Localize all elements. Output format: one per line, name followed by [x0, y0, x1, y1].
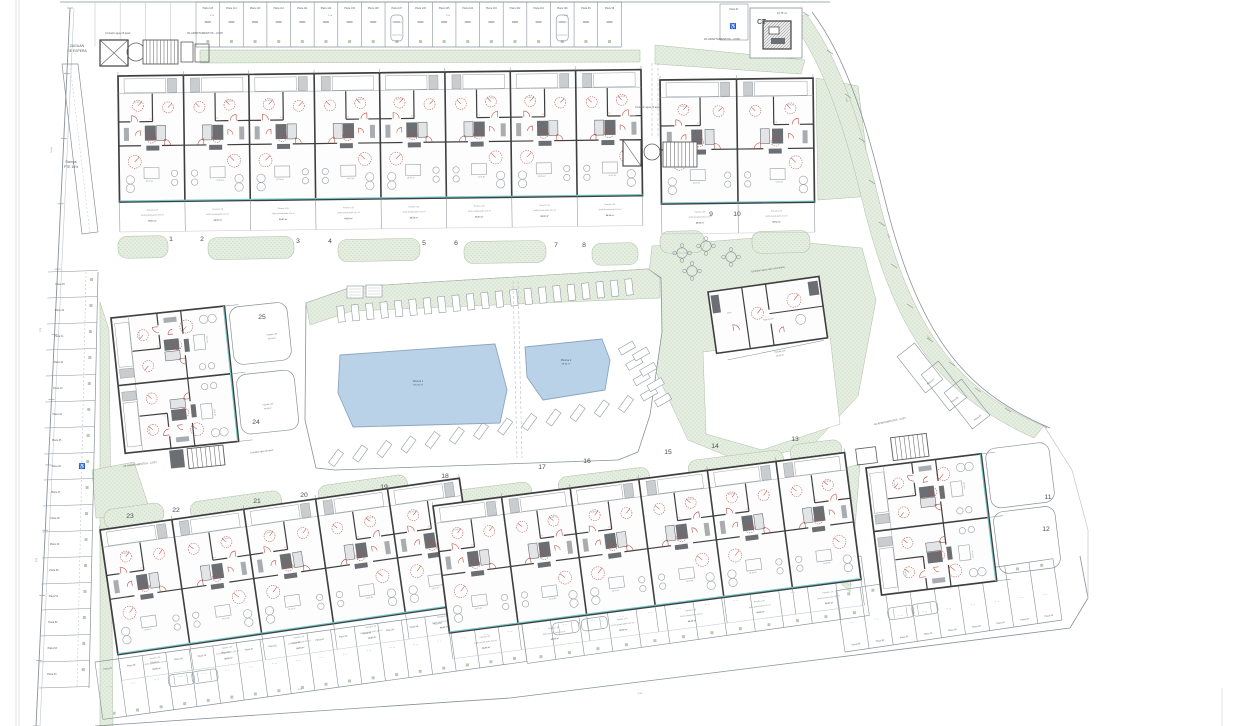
parking-stall-label: Plaza 45	[52, 439, 62, 442]
stall-edge	[103, 661, 527, 719]
car-body	[581, 616, 608, 631]
stall-divider	[1005, 566, 1014, 627]
stall-green-dot	[230, 40, 233, 43]
garden-area-text: 98.50 m²	[368, 636, 377, 640]
bath-core	[275, 124, 286, 139]
balcony-sill	[321, 76, 330, 90]
stall-green-dot	[824, 615, 827, 618]
sun-lounger	[380, 302, 389, 319]
garden-area-text: 98.50 m²	[279, 218, 288, 221]
stall-divider	[42, 557, 92, 559]
bath-fixture	[157, 125, 166, 140]
bath-core	[675, 524, 688, 540]
balcony-sill	[623, 483, 634, 498]
garden-text: Parcela 1.29	[822, 590, 833, 594]
stall-green-dot	[87, 434, 90, 437]
bath-fixture	[293, 551, 304, 567]
block-number: 7	[554, 242, 558, 249]
garden-text: Jardín privado jardín 10.5 m²	[817, 594, 841, 600]
dimension-text: 7.05	[40, 327, 42, 332]
garden-area-text: 98.50 m²	[606, 214, 615, 217]
stall-green-dot	[82, 668, 85, 671]
block-number: 15	[664, 449, 672, 456]
car-rear-window	[197, 672, 198, 682]
garden-mound-green	[118, 236, 168, 259]
garden-text: Jardín privado jardín 10.5 m²	[543, 630, 567, 636]
room-area-text: 10.35 m²	[487, 96, 495, 99]
parking-stall-label: Plaza 68	[410, 626, 419, 629]
stall-green-dot	[442, 667, 445, 670]
bath-core	[538, 541, 551, 557]
block-number: 9	[709, 211, 713, 218]
dimension-text: 2.77	[814, 499, 818, 501]
room-area-text: 18.70 m²	[146, 180, 154, 183]
bath-core	[423, 532, 436, 548]
block-number: 21	[253, 498, 261, 505]
block-number: 5	[422, 240, 426, 247]
parking-stall-label: Plaza 103	[486, 7, 497, 10]
stall-green-dot	[277, 689, 280, 692]
parking-stall-label: Plaza 105	[439, 7, 450, 10]
garden-area-text: 98.50 m²	[541, 215, 550, 218]
parking-stall-label: Plaza 40	[55, 309, 65, 312]
terrace-divider	[989, 516, 1003, 518]
bath-fixture	[802, 507, 813, 523]
pool-piscina-2	[525, 339, 610, 400]
bath-core	[813, 506, 826, 522]
stall-divider	[860, 587, 869, 648]
terrace-divider	[224, 305, 238, 306]
site-plan: Plaza 115Plaza 114Plaza 113Plaza 112Plaz…	[0, 0, 1240, 726]
stall-green-dot	[466, 40, 469, 43]
balcony-sill	[583, 73, 592, 87]
room-area-text: 10.35 m²	[618, 95, 626, 98]
garden-area-text: 98.50 m²	[296, 646, 305, 650]
garden-text: Jardín privado jardín 10.5 m²	[598, 208, 621, 211]
garden-text: Parcela 1.29	[147, 209, 158, 212]
garden-area-text: 98.50 m²	[825, 601, 834, 605]
stall-divider	[40, 635, 90, 637]
car-body	[191, 669, 218, 684]
block-number: 20	[300, 492, 308, 499]
sun-lounger	[495, 291, 504, 308]
wardrobe	[385, 125, 390, 138]
stall-green-dot	[739, 627, 742, 630]
room-area-text: 10.35 m²	[526, 96, 534, 99]
spiral-stair-circle	[127, 43, 145, 61]
block-number: 10	[733, 211, 741, 218]
wardrobe	[340, 143, 353, 148]
bath-core	[741, 515, 754, 531]
stall-green-dot	[160, 705, 163, 708]
garden-divider	[449, 633, 452, 659]
utility-room	[181, 42, 193, 62]
garden-text: Parcela 1.29	[474, 205, 485, 208]
dimension-text: 2.77	[774, 122, 777, 124]
dimension-text: 2.77	[677, 517, 681, 519]
plan-label: DE ESPERA	[67, 49, 87, 53]
balcony-sill	[878, 536, 893, 547]
stall-green-dot	[82, 642, 85, 645]
garden-divider	[334, 624, 338, 650]
dimension-text: 2.77	[697, 123, 700, 125]
parking-stall-label: Plaza 51	[49, 595, 59, 598]
balcony-sill	[429, 75, 438, 89]
accessible-parking-icon: ♿	[730, 23, 737, 30]
stall-green-dot	[1040, 564, 1043, 567]
room-area-text: 10.35 m²	[225, 100, 233, 103]
parking-stall-label: Plaza 108	[368, 7, 379, 10]
dimension-text: 2.77	[746, 508, 750, 510]
bath-fixture	[200, 565, 211, 581]
balcony	[124, 78, 166, 93]
garden-area-text: 98.50 m²	[440, 625, 449, 629]
plan-label: 26-APARTAMENTOS - COPI	[123, 460, 157, 468]
car-windshield	[930, 603, 931, 613]
wardrobe	[124, 128, 129, 141]
parking-stall-label: Plaza 112	[273, 7, 284, 10]
elevator-icon	[169, 449, 185, 468]
block-number: 23	[126, 513, 134, 520]
stall-green-dot	[419, 40, 422, 43]
stall-green-dot	[443, 40, 446, 43]
stairs-icon	[663, 142, 697, 167]
room-area-text: 18.70 m²	[608, 174, 616, 177]
bath-fixture	[549, 121, 558, 136]
parking-stall-label: Plaza 109	[344, 7, 355, 10]
car-icon	[581, 616, 608, 631]
block-number: 8	[582, 242, 586, 249]
bath-fixture	[165, 350, 181, 361]
block-number: 1	[169, 236, 173, 243]
parking-stall-label: Plaza 59	[198, 655, 207, 658]
garden-text: Parcela 1.29	[408, 205, 419, 208]
garden-area-text: 98.50 m²	[410, 216, 419, 219]
garden-text: Jardín privado jardín 10.5 m²	[216, 649, 240, 655]
building-blocks-1-8: 10.35 m²18.70 m²2.7710.35 m²18.70 m²2.77…	[118, 66, 643, 232]
stall-green-dot	[136, 709, 139, 712]
bath-fixture	[479, 549, 490, 565]
balcony-sill	[486, 501, 497, 516]
bath-core	[136, 574, 149, 590]
garden-area-text: 98.50 m²	[756, 610, 765, 614]
garden-mound-green	[464, 240, 546, 263]
stall-green-dot	[625, 643, 628, 646]
balcony-sill	[744, 82, 753, 96]
garden-area-text: 98.50 m²	[688, 619, 697, 623]
sun-lounger	[596, 281, 605, 298]
stall-green-dot	[395, 673, 398, 676]
stall-divider	[39, 687, 89, 689]
balcony	[594, 73, 636, 88]
sun-lounger	[466, 294, 475, 311]
garden-text: Parcela 1.29	[548, 626, 559, 630]
stall-green-dot	[513, 657, 516, 660]
stall-green-dot	[84, 564, 87, 567]
stall-green-dot	[85, 538, 88, 541]
garden-area-text: 98.50 m²	[224, 656, 233, 660]
sun-lounger	[481, 292, 490, 309]
bath-fixture	[287, 124, 296, 139]
stall-green-dot	[537, 40, 540, 43]
wardrobe	[471, 142, 484, 147]
wardrobe	[408, 142, 421, 147]
plan-label: 22.75 m²	[777, 11, 787, 15]
block-number: 2	[200, 236, 204, 243]
bath-fixture	[528, 543, 539, 559]
stall-green-dot	[490, 40, 493, 43]
garden-area-text: 98.50 m²	[619, 628, 628, 632]
parking-stall-label: Plaza 85	[974, 414, 983, 421]
parking-stall-label: Plaza 47	[51, 491, 61, 494]
stall-divider	[40, 661, 90, 663]
stairs-icon	[891, 433, 930, 460]
car-body	[887, 605, 914, 621]
stall-green-dot	[206, 40, 209, 43]
plan-label: ZAGUAN	[70, 44, 85, 48]
balcony-sill	[167, 78, 176, 92]
garden-text: Parcela 1.29	[617, 617, 628, 621]
dimension-text: 2.77	[912, 493, 914, 497]
room-area-text: 10.35 m²	[396, 98, 404, 101]
garden-text: Parcela 1.29	[150, 656, 161, 660]
bath-fixture	[760, 129, 769, 144]
bath-fixture	[149, 572, 160, 588]
parking-stall-label: Plaza 53	[48, 647, 58, 650]
parking-stall-label: Plaza 107	[392, 7, 403, 10]
wardrobe	[239, 126, 244, 139]
balcony-sill	[444, 482, 455, 497]
balcony-sill	[156, 524, 167, 539]
garden-area-text: 98.50 m²	[772, 221, 781, 224]
bath-core	[145, 126, 156, 141]
garden-text: Jardín privado jardín 10.5 m²	[144, 660, 168, 666]
bath-fixture	[464, 122, 473, 137]
balcony-sill	[179, 520, 190, 535]
stall-green-dot	[796, 619, 799, 622]
pool-area-label: 436.30 m²	[413, 384, 423, 387]
plan-label: Parcela 1.29	[263, 402, 274, 406]
stall-divider	[1053, 559, 1062, 620]
bath-fixture	[418, 122, 427, 137]
plan-label: Contador agua 25 apart.	[105, 32, 131, 35]
block-number: 24	[252, 419, 260, 426]
garden-mound-green	[208, 236, 294, 259]
balcony	[201, 77, 243, 92]
building-blocks-11-12: 10.35 m²18.70 m²2.7710.35 m²18.70 m²2.77	[866, 452, 1011, 595]
stall-green-dot	[489, 660, 492, 663]
balcony-sill	[875, 514, 890, 525]
stall-green-dot	[539, 655, 542, 658]
dimension-text: 2.77	[150, 119, 153, 121]
garden-text: Jardín privado jardín 10.5 m²	[468, 209, 491, 212]
parking-stall-label: Plaza 94	[996, 622, 1005, 625]
stall-edge	[527, 615, 869, 663]
parking-stall-label: Plaza 113	[250, 7, 261, 10]
stall-green-dot	[88, 382, 91, 385]
plan-label: 40-APARTAMENTOS - COPI	[874, 417, 906, 427]
stall-green-dot	[89, 330, 92, 333]
stall-green-dot	[183, 702, 186, 705]
dimension-text: 2.77	[346, 116, 349, 118]
garden-area-text: 98.50 m²	[148, 220, 157, 223]
bath-core	[604, 120, 615, 135]
block-number: 19	[380, 484, 388, 491]
sun-lounger	[567, 284, 576, 301]
block-number: 18	[441, 473, 449, 480]
parking-stall-label: Plaza 106	[415, 7, 426, 10]
bath-fixture	[926, 541, 942, 552]
bath-core	[604, 533, 617, 549]
dimension-text: 2.50	[564, 15, 569, 17]
stall-green-dot	[325, 683, 328, 686]
stall-green-dot	[710, 631, 713, 634]
stall-green-dot	[301, 40, 304, 43]
entry-porch	[856, 447, 878, 465]
bath-fixture	[705, 129, 714, 144]
stall-green-dot	[653, 639, 656, 642]
balcony-sill	[122, 391, 137, 401]
parking-stall-label: Plaza 39	[55, 283, 65, 286]
stall-green-dot	[608, 40, 611, 43]
dimension-text: 5.00	[36, 557, 38, 562]
parking-stall-label: Plaza 62	[268, 645, 277, 648]
stall-green-dot	[395, 40, 398, 43]
bath-core	[212, 125, 223, 140]
sun-lounger	[409, 299, 418, 316]
parking-stall-label: Plaza 67	[386, 629, 395, 632]
stall-green-dot	[324, 40, 327, 43]
parking-stall-label: Plaza 110	[321, 7, 332, 10]
garden-text: Jardín privado jardín 10.5 m²	[680, 612, 704, 618]
west-boundary-inner	[40, 8, 74, 726]
parking-stall-label: Plaza 96	[1045, 615, 1054, 618]
wardrobe	[501, 123, 506, 136]
sun-lounger	[394, 300, 403, 317]
car-icon	[887, 605, 914, 621]
parking-stall-label: Plaza 41	[54, 335, 64, 338]
garden-text: Jardín privado jardín 10.5 m²	[765, 214, 788, 217]
stall-green-dot	[871, 589, 874, 592]
stairs-outline	[663, 142, 697, 167]
garden-area-text: 98.50 m²	[475, 216, 484, 219]
block-number: 13	[791, 436, 799, 443]
stall-green-dot	[767, 623, 770, 626]
garden-text: Jardín privado jardín 10.5 m²	[474, 639, 498, 645]
parking-stall-label: Plaza 86	[951, 396, 960, 403]
chair	[704, 237, 708, 241]
block-number: 14	[711, 443, 719, 450]
parking-stall-label: Plaza 98	[605, 7, 615, 10]
balcony-sill	[323, 500, 334, 515]
block-number: 12	[1042, 526, 1050, 533]
car-icon	[191, 669, 218, 684]
parking-stall-label: Plaza 65	[339, 635, 348, 638]
block-number: 22	[172, 507, 180, 514]
building-blocks-24-25: 10.35 m²18.70 m²2.7710.35 m²18.70 m²2.77	[111, 305, 253, 454]
stall-divider	[47, 297, 97, 299]
garden-area-text: 98.50 m²	[152, 667, 161, 671]
west-boundary	[36, 8, 70, 726]
block-number: 17	[538, 464, 546, 471]
stall-green-dot	[847, 592, 850, 595]
stall-green-dot	[853, 611, 856, 614]
ct-cell	[769, 27, 779, 34]
stall-green-dot	[87, 408, 90, 411]
stall-green-dot	[90, 278, 93, 281]
garden-text: Jardín privado jardín 10.5 m²	[533, 209, 556, 212]
stall-green-dot	[85, 512, 88, 515]
room-area-text: 10.35 m²	[356, 98, 364, 101]
parking-stall-label: Plaza 89	[876, 640, 885, 643]
building-blocks-13-18: 10.35 m²18.70 m²2.7710.35 m²18.70 m²2.77…	[432, 449, 864, 659]
garden-text: Parcela 1.29	[771, 210, 782, 213]
wardrobe	[803, 130, 808, 143]
block-number: 3	[296, 238, 300, 245]
sun-lounger	[437, 296, 446, 313]
balcony	[386, 75, 428, 90]
stall-divider	[189, 649, 197, 706]
dimension-text: 2.50	[328, 15, 333, 17]
parking-stall-label: Plaza 111	[297, 7, 308, 10]
parking-stall-label: Plaza 88	[852, 643, 861, 646]
plan-label: 20-APARTAMENTOS - COPI	[704, 37, 740, 41]
bath-core	[171, 408, 187, 421]
stall-green-dot	[254, 40, 257, 43]
car-windshield	[210, 670, 211, 680]
room-area-text: 18.70 m²	[538, 175, 546, 178]
stall-divider	[425, 617, 433, 674]
stall-green-dot	[419, 670, 422, 673]
stall-green-dot	[372, 40, 375, 43]
car-icon	[168, 672, 195, 687]
stall-green-dot	[83, 616, 86, 619]
stall-divider	[48, 271, 98, 273]
bath-core	[406, 122, 417, 137]
balcony-sill	[300, 503, 311, 518]
spiral-stair-circle	[644, 144, 660, 160]
block-number: 16	[583, 458, 591, 465]
plan-label: 98.50 m²	[264, 407, 272, 411]
parking-stall-label: Plaza 99	[581, 7, 591, 10]
balcony-sill	[509, 498, 520, 513]
parking-stall-label: Plaza 87	[927, 378, 936, 385]
garden-area-text: 98.50 m²	[696, 221, 705, 224]
garden-area-text: 98.50 m²	[482, 646, 491, 650]
wardrobe	[146, 146, 159, 151]
plan-label: Parcela 1.29	[267, 332, 278, 336]
parking-stall-label: Plaza 91	[924, 632, 933, 635]
site-plan-page: Plaza 115Plaza 114Plaza 113Plaza 112Plaz…	[0, 0, 1240, 726]
balcony	[755, 81, 808, 96]
dimension-text: 2.77	[540, 535, 544, 537]
garden-text: Parcela 1.29	[479, 635, 490, 639]
stall-green-dot	[348, 40, 351, 43]
plan-label: Rampa	[66, 160, 77, 164]
dimension-text: 2.77	[280, 117, 283, 119]
sun-lounger	[365, 303, 374, 320]
wardrobe	[370, 125, 375, 138]
balcony	[666, 82, 719, 97]
balcony	[332, 76, 374, 91]
parking-stall-label: Plaza 90	[900, 636, 909, 639]
parking-stall-label: Plaza 44	[53, 413, 63, 416]
car-rear-window	[917, 605, 918, 615]
terrace-divider	[997, 579, 1011, 581]
garden-area-text: 98.50 m²	[344, 217, 353, 220]
stall-divider	[44, 453, 94, 455]
garden-text: Parcela 1.29	[695, 210, 706, 213]
